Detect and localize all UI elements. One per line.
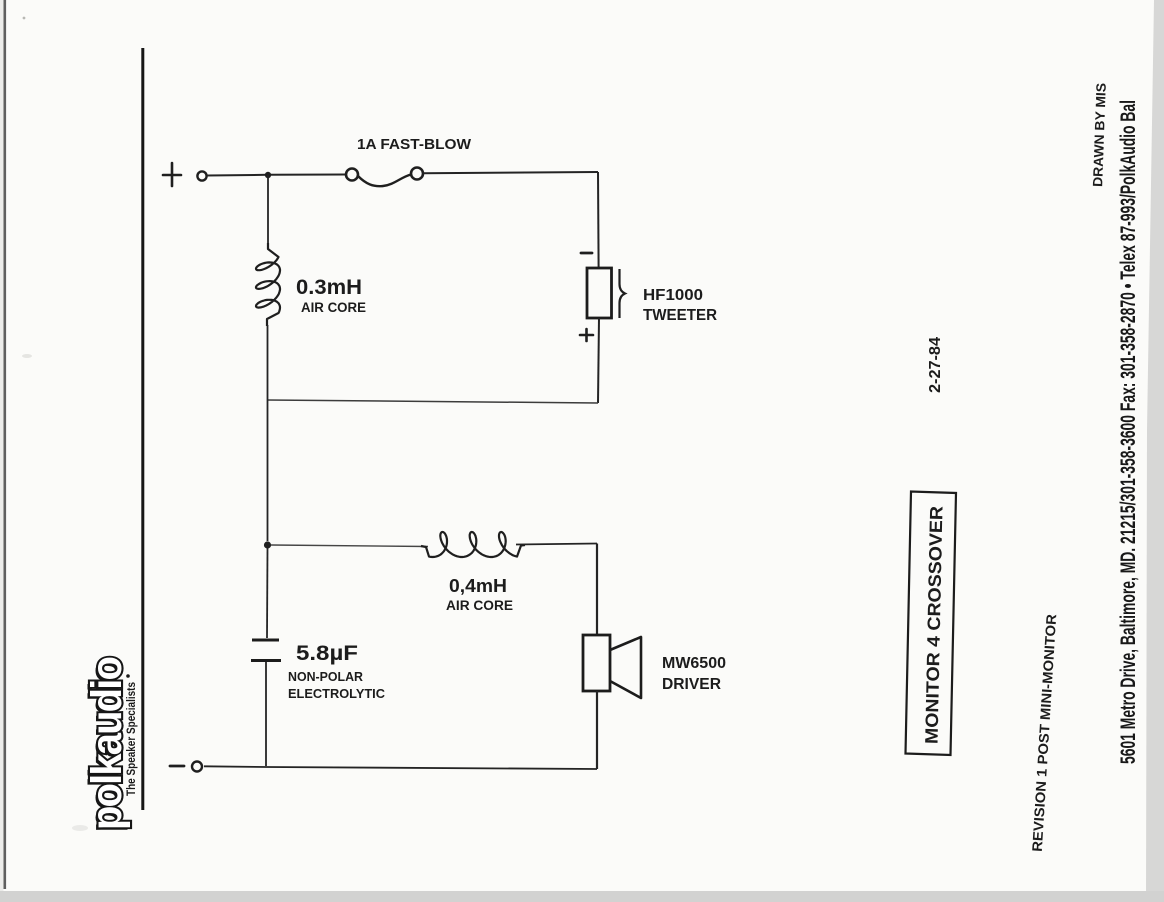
svg-text:5.8µF: 5.8µF xyxy=(296,642,358,665)
svg-text:MW6500: MW6500 xyxy=(662,655,726,672)
svg-text:0.3mH: 0.3mH xyxy=(296,276,362,299)
svg-text:DRIVER: DRIVER xyxy=(662,676,721,693)
svg-text:The Speaker Specialists: The Speaker Specialists xyxy=(124,682,138,796)
svg-text:AIR CORE: AIR CORE xyxy=(446,598,513,613)
svg-text:1A FAST-BLOW: 1A FAST-BLOW xyxy=(357,137,471,153)
svg-text:NON-POLAR: NON-POLAR xyxy=(288,669,364,684)
svg-text:ELECTROLYTIC: ELECTROLYTIC xyxy=(288,686,386,701)
svg-text:5601 Metro Drive, Baltimore, M: 5601 Metro Drive, Baltimore, MD. 21215/3… xyxy=(1117,100,1140,764)
svg-text:0,4mH: 0,4mH xyxy=(449,576,507,596)
svg-text:2-27-84: 2-27-84 xyxy=(927,337,944,393)
svg-text:TWEETER: TWEETER xyxy=(643,307,717,324)
svg-text:HF1000: HF1000 xyxy=(643,287,703,304)
svg-text:AIR CORE: AIR CORE xyxy=(301,300,366,315)
